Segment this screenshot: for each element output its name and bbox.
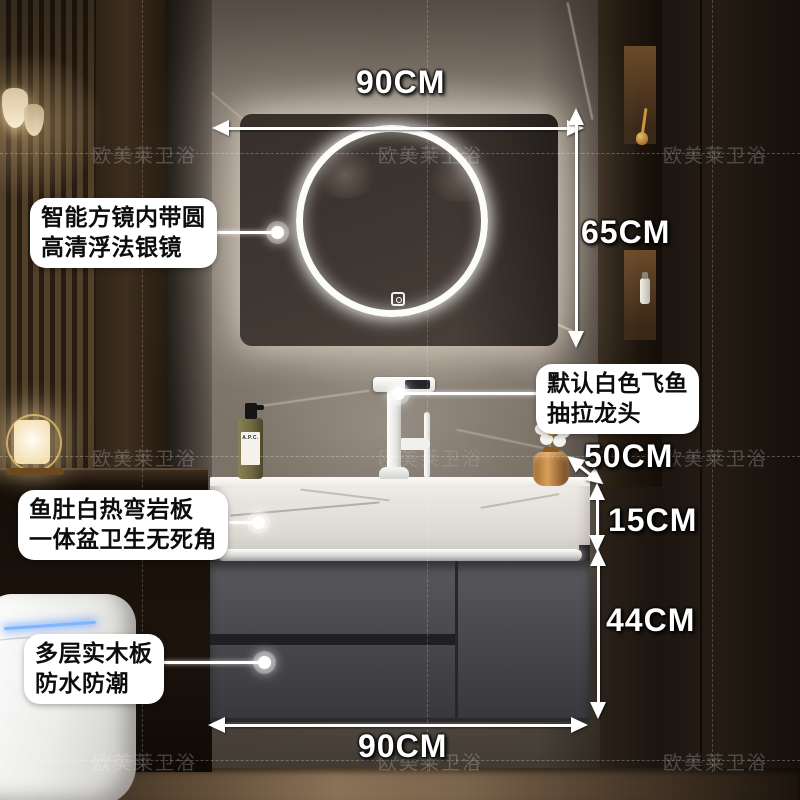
dimension-label-mirror-height: 65CM	[581, 214, 670, 251]
dimension-label-basin-height: 15CM	[608, 502, 697, 539]
dimension-arrow-basin-height	[589, 483, 606, 552]
flower-petal	[553, 435, 566, 447]
arrow-shaft	[575, 119, 578, 337]
brand-watermark: 欧美莱卫浴	[378, 444, 483, 471]
dimension-arrow-cabinet-height	[590, 549, 607, 719]
callout-dot-mirror	[271, 226, 284, 239]
power-touch-icon[interactable]	[391, 292, 405, 306]
product-photo-bathroom-vanity: A.P.C. 欧美莱卫浴 欧美莱卫浴 欧美莱卫浴 欧美莱卫浴 欧美莱卫浴 欧美莱…	[0, 0, 800, 800]
callout-faucet-line2: 抽拉龙头	[547, 399, 688, 429]
arrow-shaft	[597, 560, 600, 708]
callout-line-cabinet	[163, 661, 261, 664]
callout-faucet-line1: 默认白色飞鱼	[547, 369, 688, 399]
callout-dot-cabinet	[258, 656, 271, 669]
arrowhead-up-icon	[590, 549, 606, 566]
decor-bottle	[640, 278, 650, 304]
callout-faucet: 默认白色飞鱼 抽拉龙头	[536, 364, 699, 434]
arrowhead-left-icon	[208, 717, 225, 733]
arrowhead-down-icon	[568, 331, 584, 348]
under-counter-light-strip	[218, 549, 582, 561]
arrowhead-up-icon	[568, 108, 584, 125]
arrowhead-up-icon	[589, 483, 605, 500]
callout-dot-faucet	[392, 387, 405, 400]
arrowhead-down-icon	[590, 702, 606, 719]
arrowhead-right-icon	[571, 717, 588, 733]
decor-bottle-cap	[642, 272, 648, 279]
arrowhead-left-icon	[212, 120, 229, 136]
table-lamp-base	[6, 468, 64, 475]
callout-dot-basin	[252, 516, 265, 529]
arrow-shaft	[596, 494, 599, 541]
callout-basin-line2: 一体盆卫生无死角	[29, 525, 217, 555]
callout-cabinet: 多层实木板 防水防潮	[24, 634, 164, 704]
callout-basin-line1: 鱼肚白热弯岩板	[29, 495, 217, 525]
callout-cabinet-line1: 多层实木板	[35, 639, 153, 669]
soap-pump-spout	[255, 405, 264, 410]
callout-basin: 鱼肚白热弯岩板 一体盆卫生无死角	[18, 490, 228, 560]
brand-watermark: 欧美莱卫浴	[663, 141, 768, 168]
dimension-label-cabinet-height: 44CM	[606, 602, 695, 639]
dimension-label-counter-depth: 50CM	[584, 438, 673, 475]
table-lamp	[14, 420, 50, 464]
callout-mirror-line1: 智能方镜内带圆	[41, 203, 206, 233]
dimension-label-mirror-width: 90CM	[356, 64, 445, 101]
brand-watermark: 欧美莱卫浴	[92, 748, 197, 775]
drawer-groove[interactable]	[210, 634, 456, 645]
shelf-niche	[624, 46, 656, 144]
vanity-cabinet	[210, 561, 590, 722]
callout-line-mirror	[212, 231, 274, 234]
dimension-label-cabinet-width: 90CM	[358, 728, 447, 765]
gold-vase	[533, 452, 569, 486]
callout-mirror: 智能方镜内带圆 高清浮法银镜	[30, 198, 217, 268]
dimension-arrow-mirror-width	[212, 120, 584, 137]
soap-bottle-label: A.P.C.	[241, 432, 260, 465]
arrow-shaft	[223, 127, 573, 130]
watermark-dashed-line-vertical	[427, 0, 428, 772]
wall-panel-seam	[700, 0, 702, 772]
brand-watermark: 欧美莱卫浴	[92, 444, 197, 471]
callout-cabinet-line2: 防水防潮	[35, 669, 153, 699]
arrow-shaft	[219, 724, 577, 727]
brand-watermark: 欧美莱卫浴	[663, 748, 768, 775]
callout-mirror-line2: 高清浮法银镜	[41, 233, 206, 263]
callout-line-faucet	[404, 392, 538, 395]
door-gap	[455, 561, 458, 722]
brand-watermark: 欧美莱卫浴	[663, 444, 768, 471]
watermark-dashed-line-vertical	[712, 0, 713, 772]
brand-watermark: 欧美莱卫浴	[92, 141, 197, 168]
gold-vase-decor	[636, 132, 648, 145]
brand-watermark: 欧美莱卫浴	[378, 141, 483, 168]
